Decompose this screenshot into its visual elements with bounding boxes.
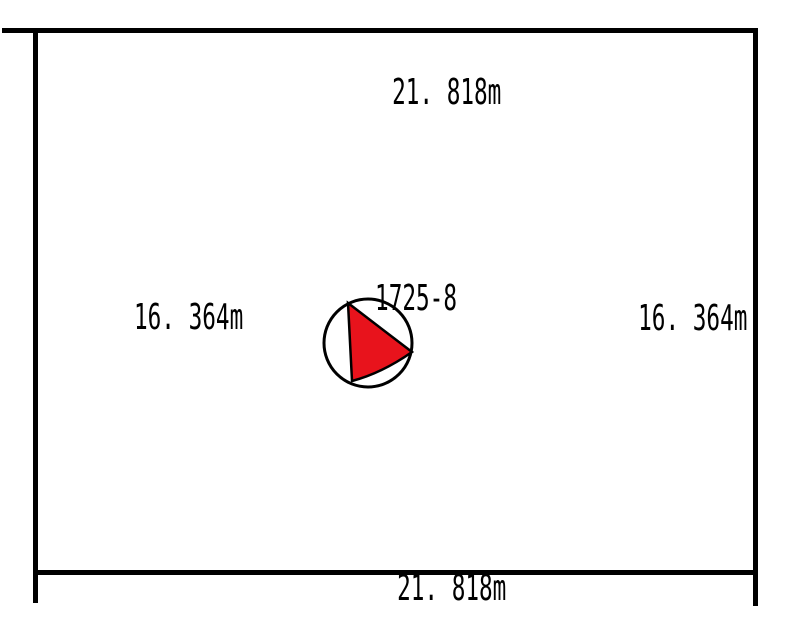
dimension-label-bottom: 21. 818m	[278, 535, 478, 628]
dimension-label-bottom-text: 21. 818m	[397, 571, 506, 607]
survey-marker	[318, 293, 418, 393]
dimension-label-top: 21. 818m	[273, 39, 473, 147]
boundary-line-top	[2, 28, 758, 33]
dimension-label-left-text: 16. 364m	[134, 300, 243, 336]
dimension-label-right-text: 16. 364m	[638, 301, 747, 337]
boundary-line-left	[33, 28, 38, 603]
parcel-diagram: 21. 818m 21. 818m 16. 364m 16. 364m 1725…	[0, 0, 800, 628]
boundary-line-right	[753, 28, 758, 606]
dimension-label-top-text: 21. 818m	[392, 75, 501, 111]
dimension-label-right: 16. 364m	[487, 265, 747, 373]
